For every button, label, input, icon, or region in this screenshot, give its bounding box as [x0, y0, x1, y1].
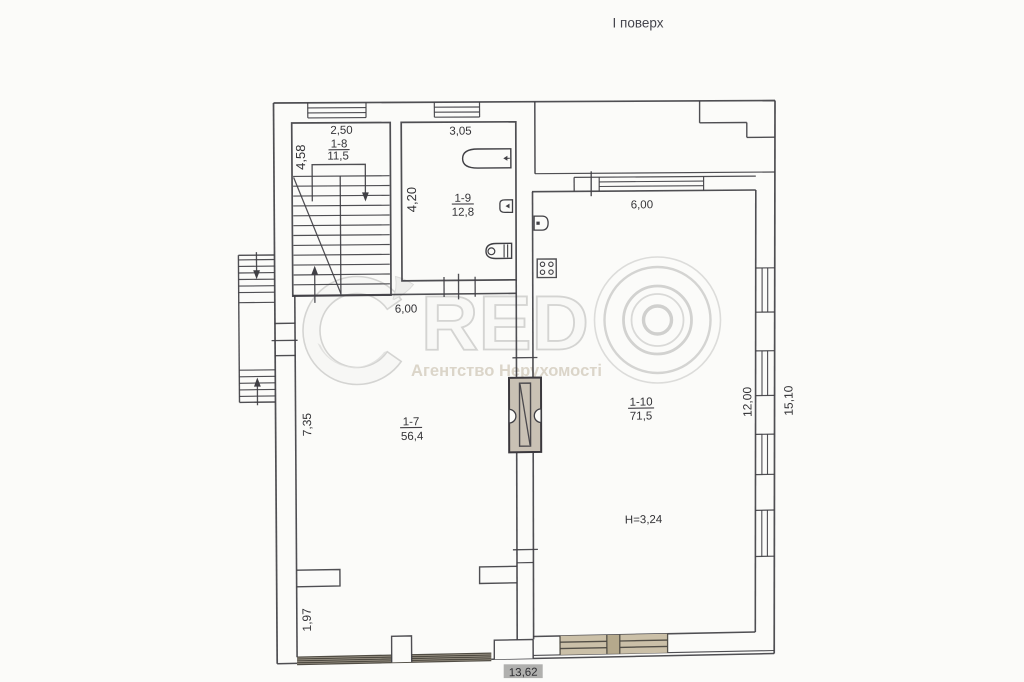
svg-text:Агентство Нерухомості: Агентство Нерухомості	[411, 362, 602, 380]
svg-text:7,35: 7,35	[300, 413, 314, 437]
svg-text:56,4: 56,4	[401, 431, 424, 443]
svg-text:71,5: 71,5	[630, 410, 653, 422]
svg-text:1-7: 1-7	[403, 416, 420, 428]
svg-text:6,00: 6,00	[631, 199, 653, 211]
svg-text:І поверх: І поверх	[613, 16, 664, 31]
svg-text:4,20: 4,20	[404, 187, 419, 212]
svg-text:6,00: 6,00	[395, 303, 418, 315]
svg-text:1-9: 1-9	[454, 193, 471, 205]
svg-text:3,05: 3,05	[449, 126, 471, 138]
svg-text:2,50: 2,50	[330, 125, 352, 137]
svg-text:11,5: 11,5	[327, 150, 349, 162]
svg-text:Н=3,24: Н=3,24	[625, 514, 663, 527]
svg-text:4,58: 4,58	[293, 145, 308, 170]
svg-text:1-10: 1-10	[629, 396, 652, 408]
svg-text:12,8: 12,8	[452, 207, 474, 219]
svg-text:15,10: 15,10	[781, 385, 795, 416]
svg-text:13,62: 13,62	[509, 667, 538, 680]
svg-text:1-8: 1-8	[331, 138, 348, 150]
svg-text:1,97: 1,97	[300, 608, 314, 632]
svg-text:12,00: 12,00	[740, 387, 754, 418]
